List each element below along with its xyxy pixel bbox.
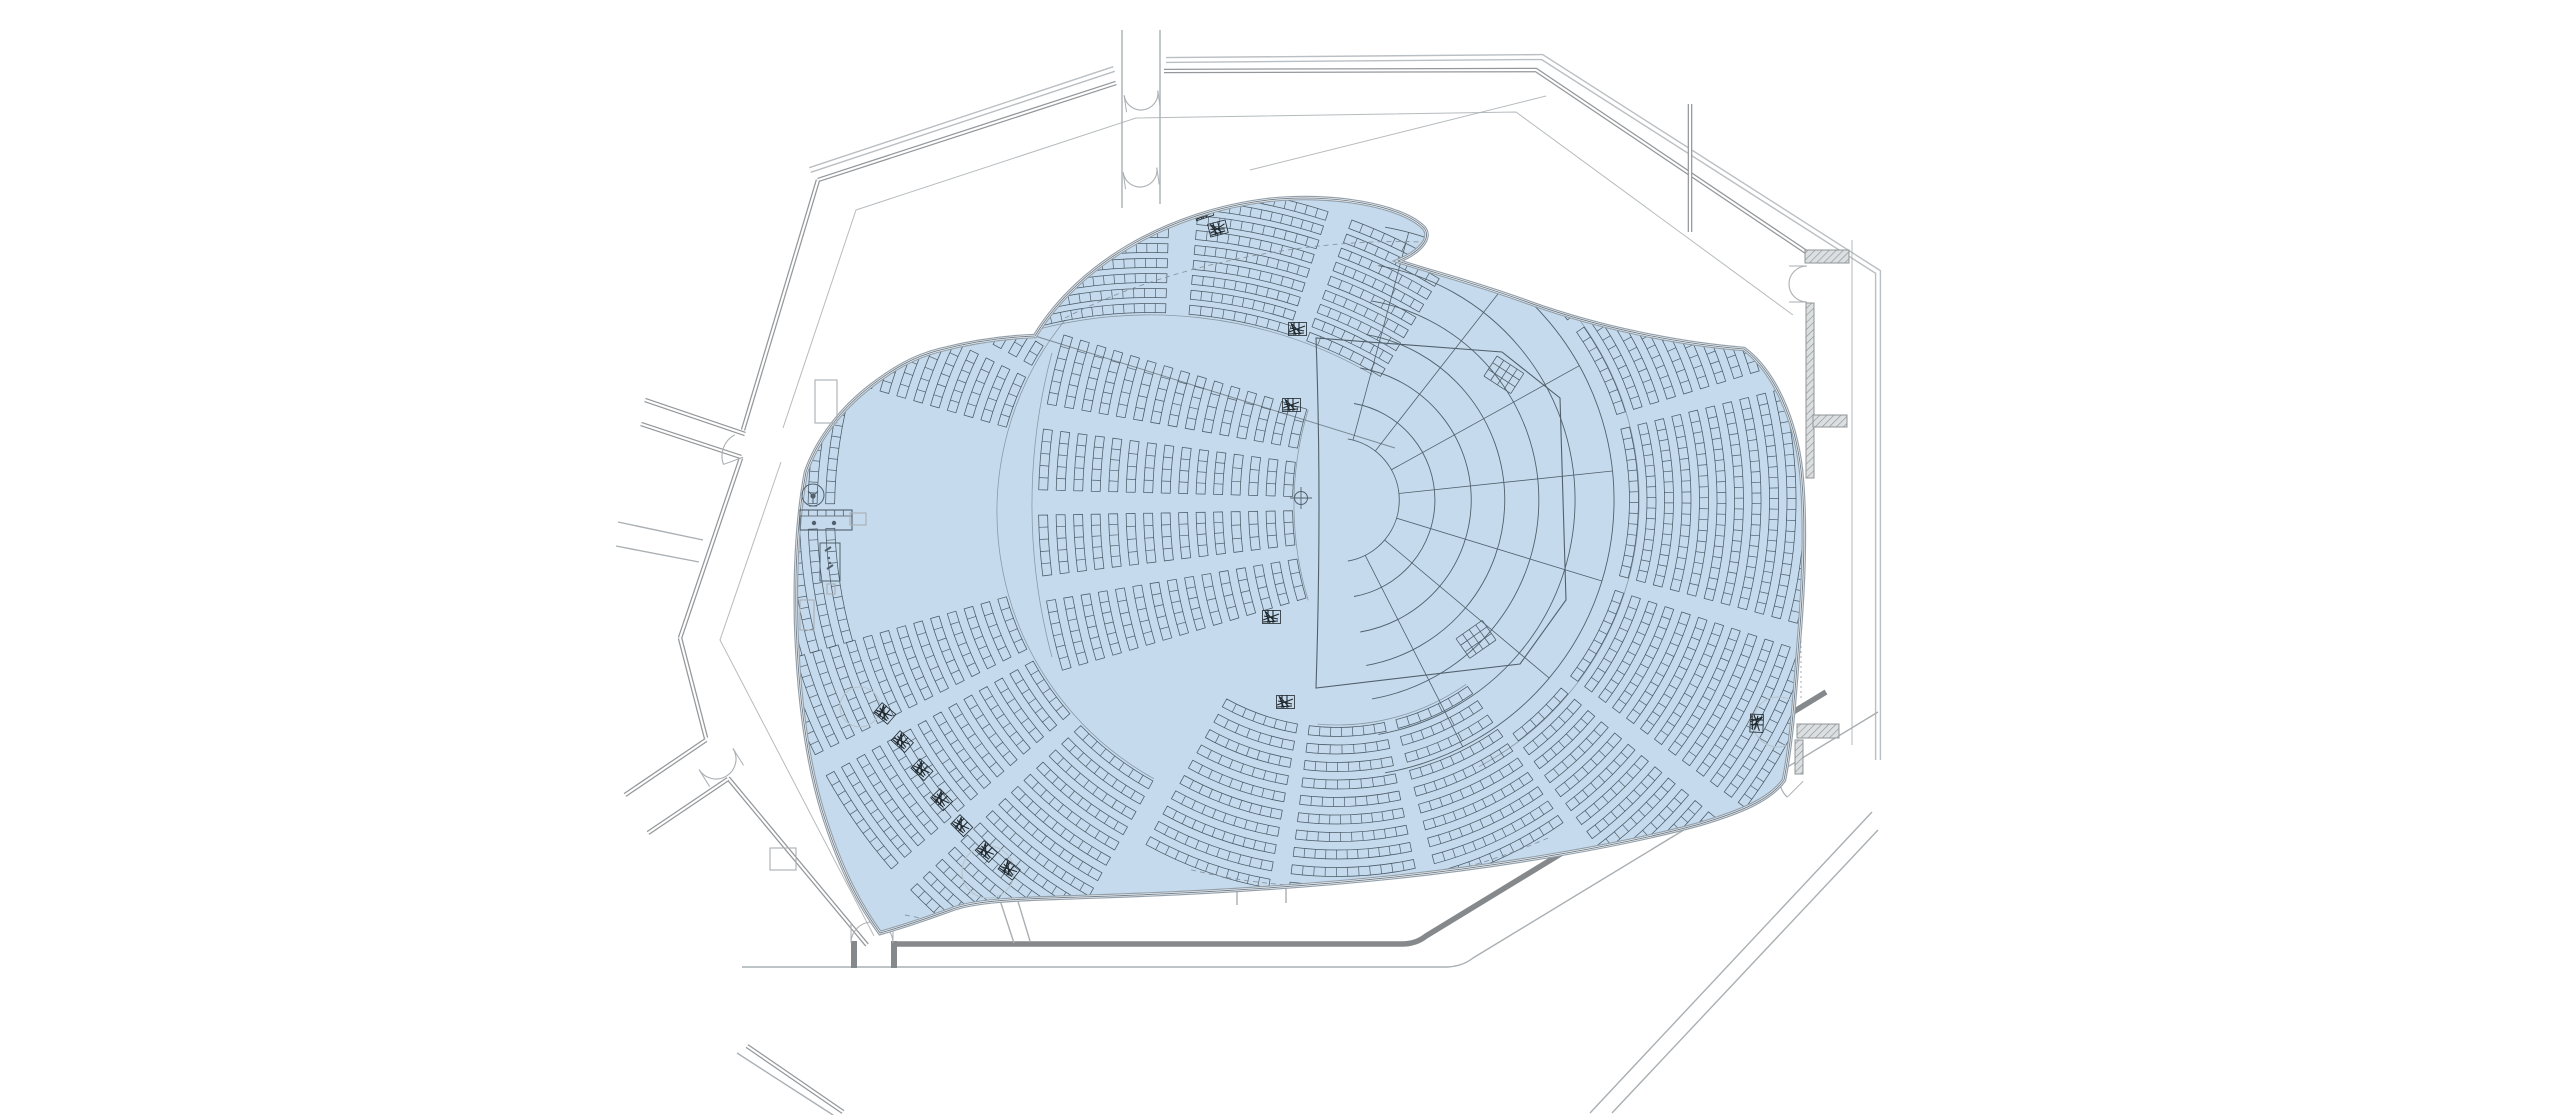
door-top-corridor-lower-icon [1123,168,1159,190]
upper-closet-icon [815,380,837,423]
wall-left-mid [680,458,741,638]
hatched-wall-segment [1805,250,1849,263]
wheelchair-scribble-icon [1755,318,1769,336]
corridor-left-horizontal-b [616,546,699,562]
door-jamb [891,941,897,968]
door-top-corridor-upper-icon [1124,91,1160,113]
wall-left-upper [743,180,818,430]
lower-left-closet-icon [770,848,796,870]
diag-bottom-right-a [1590,812,1872,1113]
wall-left-lower-a [680,638,706,738]
hatched-wall-segment [1797,724,1839,738]
screenshot-root [0,0,2560,1115]
corridor-left-horizontal-a [618,522,703,540]
foyer-line-top-right-diag [1250,96,1546,170]
wall-bottom-left-diag [747,1046,843,1112]
corridor-lower-left-wall-a [625,740,706,795]
corridor-lower-left-wall-b [648,779,728,833]
door-jamb [851,941,857,968]
door-right-upper-icon [1789,266,1807,302]
foyer-line-left-upper [783,210,856,428]
hatched-wall-segment [1806,303,1814,478]
hatched-wall-segment [1813,415,1847,427]
wall-bottom-left-diag-thin [737,1053,833,1115]
hatched-wall-segment [1795,740,1803,774]
wall-top-left [818,83,1116,180]
diag-bottom-right-b [1612,830,1878,1113]
floor-plan [0,0,2560,1115]
skin-top-left [810,69,1114,170]
